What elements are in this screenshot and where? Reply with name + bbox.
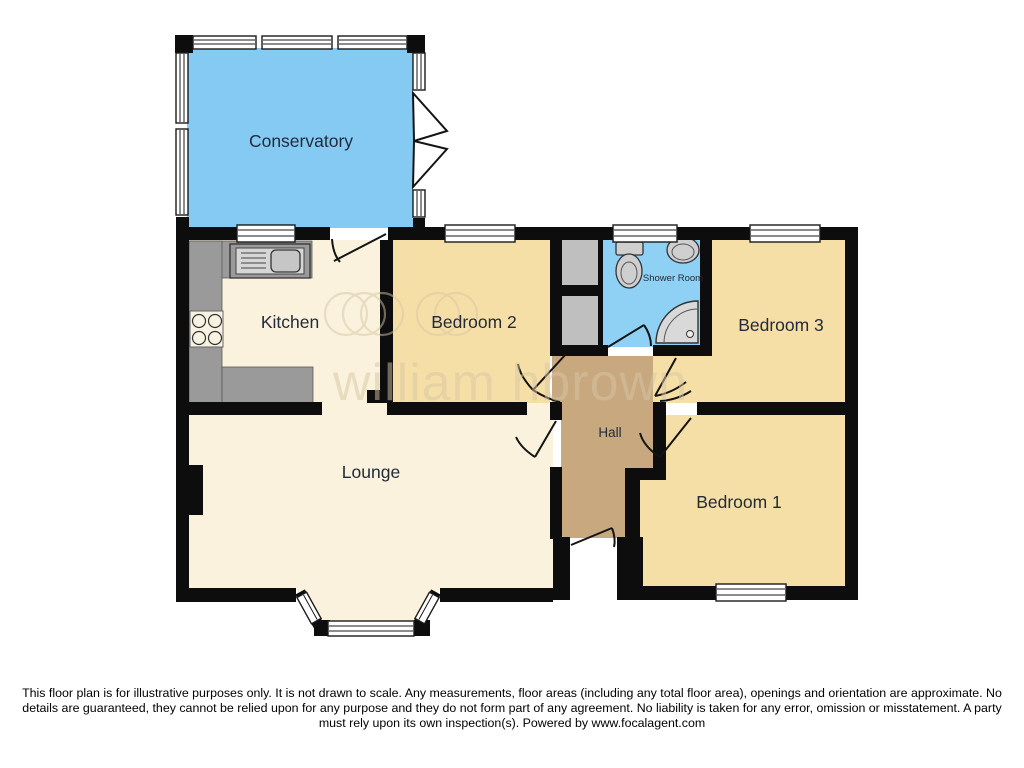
hall-label: Hall [598, 425, 621, 440]
wall-segment [675, 227, 750, 240]
counter-bottom [222, 367, 313, 403]
wall-segment [185, 402, 322, 415]
wall-segment [640, 586, 716, 600]
disclaimer: This floor plan is for illustrative purp… [0, 686, 1024, 732]
disclaimer-line: This floor plan is for illustrative purp… [0, 686, 1024, 701]
floorplan-drawing: william hbrown Conservatory Kitchen Bedr… [0, 0, 1024, 680]
wall-segment [700, 240, 712, 356]
toilet-icon [616, 242, 643, 288]
sink-icon [230, 244, 310, 278]
conservatory-post [407, 35, 425, 53]
wall-segment [786, 586, 858, 600]
cupboard-top [562, 240, 598, 286]
window [413, 53, 425, 90]
window [176, 53, 188, 123]
porch-wall [617, 537, 643, 600]
bedroom3-window [750, 225, 820, 242]
shower-room-label: Shower Room [643, 273, 703, 284]
bedroom1-window [716, 584, 786, 601]
wall-segment [176, 588, 296, 602]
conservatory-label: Conservatory [249, 131, 353, 151]
window [338, 36, 407, 49]
conservatory-double-doors [413, 93, 447, 187]
bedroom1-label: Bedroom 1 [696, 492, 782, 512]
window [193, 36, 256, 49]
bedroom2-label: Bedroom 2 [431, 312, 517, 332]
porch-wall [553, 537, 570, 600]
wall-segment [176, 217, 189, 240]
watermark-brand-text: william hbrown [332, 354, 688, 412]
wall-segment [697, 402, 845, 415]
wall-segment [413, 218, 425, 240]
wall-segment [562, 285, 598, 296]
bedroom2-window [445, 225, 515, 242]
chimney-breast [189, 465, 203, 515]
wall-segment [515, 227, 613, 240]
wall-segment [598, 240, 603, 345]
window [176, 129, 188, 215]
shower-window [613, 225, 677, 242]
bay-window [328, 621, 414, 636]
kitchen-label: Kitchen [261, 312, 319, 332]
hob-icon [190, 311, 223, 347]
window [413, 190, 425, 217]
disclaimer-line: must rely upon its own inspection(s). Po… [0, 716, 1024, 731]
floorplan-page: william hbrown Conservatory Kitchen Bedr… [0, 0, 1024, 768]
lounge-label: Lounge [342, 462, 400, 482]
bedroom3-label: Bedroom 3 [738, 315, 824, 335]
wall-segment [550, 240, 562, 352]
lounge-floor [189, 402, 553, 589]
window [262, 36, 332, 49]
wall-segment [653, 402, 666, 470]
kitchen-window [237, 225, 295, 242]
wall-segment [550, 467, 562, 539]
disclaimer-line: details are guaranteed, they cannot be r… [0, 701, 1024, 716]
wall-segment [625, 468, 666, 480]
wall-segment [845, 227, 858, 600]
conservatory-post [175, 35, 193, 53]
wall-segment [440, 588, 553, 602]
cupboard-bottom [562, 296, 598, 346]
